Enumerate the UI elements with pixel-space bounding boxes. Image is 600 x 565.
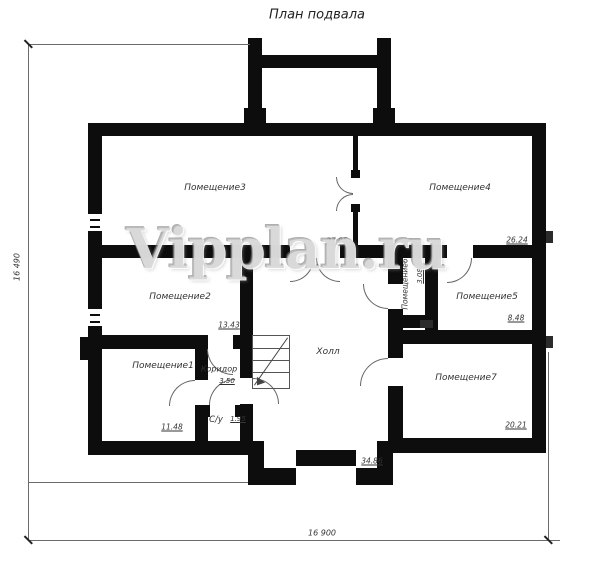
wall-outer-top bbox=[88, 123, 546, 136]
room5-area: 8.48 bbox=[508, 314, 525, 323]
window-mark bbox=[90, 219, 100, 221]
wc-fixture bbox=[246, 424, 253, 429]
vent-bump-right-upper bbox=[546, 231, 553, 243]
hall-area: 34.86 bbox=[361, 457, 382, 466]
stair-tread bbox=[253, 348, 289, 349]
room4-label: Помещение4 bbox=[429, 183, 491, 193]
extension-line-porch bbox=[28, 482, 248, 483]
door-arc-room3-room4-lower-leaf bbox=[336, 194, 353, 211]
room7-area: 20.21 bbox=[505, 421, 526, 430]
wc-area: 1.95 bbox=[230, 415, 246, 423]
door-arc-room3-room4-upper-leaf bbox=[336, 177, 353, 194]
wall-bumpout-foot-left bbox=[244, 108, 266, 125]
door-arc-room4-room5 bbox=[447, 258, 472, 283]
wall-room2-bottom-left bbox=[102, 335, 207, 349]
stair-tread bbox=[253, 372, 289, 373]
wall-hall-right-c bbox=[388, 386, 403, 453]
wall-room2-bottom-right bbox=[233, 335, 253, 349]
wall-porch-bottom-right bbox=[356, 468, 393, 485]
window-mark bbox=[90, 226, 100, 228]
extension-line-right bbox=[548, 352, 549, 540]
corridor-label: Коридор bbox=[201, 365, 237, 374]
door-arc-corridor-room1 bbox=[169, 380, 195, 406]
hall-label: Холл bbox=[316, 347, 339, 357]
wc-fixture bbox=[246, 432, 253, 436]
room2-area: 13.43 bbox=[218, 321, 239, 330]
room1-area: 11.48 bbox=[161, 423, 182, 432]
wall-outer-left bbox=[88, 123, 102, 455]
wall-outer-bottom-left bbox=[88, 441, 260, 455]
window-left-upper bbox=[88, 214, 102, 231]
room3-label: Помещение3 bbox=[184, 183, 246, 193]
wall-outer-bottom-right bbox=[392, 438, 546, 453]
wall-outer-right bbox=[532, 123, 546, 453]
wall-middle-c bbox=[473, 245, 532, 258]
wall-bumpout-cross bbox=[262, 55, 377, 68]
dimension-height-label: 16 490 bbox=[13, 253, 22, 281]
window-mark bbox=[90, 321, 100, 323]
room7-label: Помещение7 bbox=[435, 373, 497, 383]
room4-area: 26.24 bbox=[506, 236, 527, 245]
door-arc-hall-room7 bbox=[360, 358, 388, 386]
vipplan-watermark: Vipplan.ru bbox=[126, 216, 446, 283]
wall-room5-bottom bbox=[398, 330, 546, 344]
wall-porch-bottom-left bbox=[248, 468, 296, 485]
room1-label: Помещение1 bbox=[132, 361, 194, 371]
window-left-lower bbox=[88, 309, 102, 326]
corridor-area: 3.50 bbox=[219, 377, 235, 385]
dimension-line-bottom bbox=[28, 540, 560, 541]
floor-plan-canvas: План подвала bbox=[0, 0, 600, 565]
room5-label: Помещение5 bbox=[456, 292, 518, 302]
pilaster-left bbox=[80, 337, 88, 360]
wc-label: С/у bbox=[209, 415, 223, 425]
window-mark bbox=[90, 314, 100, 316]
door-arc-hall-room6 bbox=[363, 284, 388, 309]
plan-title: План подвала bbox=[269, 8, 365, 23]
extension-line-top bbox=[28, 44, 250, 45]
dimension-line-left bbox=[28, 44, 29, 540]
wall-bumpout-foot-right bbox=[373, 108, 395, 125]
vent-bump-right-lower bbox=[546, 336, 553, 348]
dimension-width-label: 16 900 bbox=[308, 529, 336, 538]
wall-porch-threshold bbox=[296, 450, 356, 466]
wall-wc-top-left bbox=[195, 405, 210, 417]
room6-fixture bbox=[420, 320, 433, 328]
room2-label: Помещение2 bbox=[149, 292, 211, 302]
